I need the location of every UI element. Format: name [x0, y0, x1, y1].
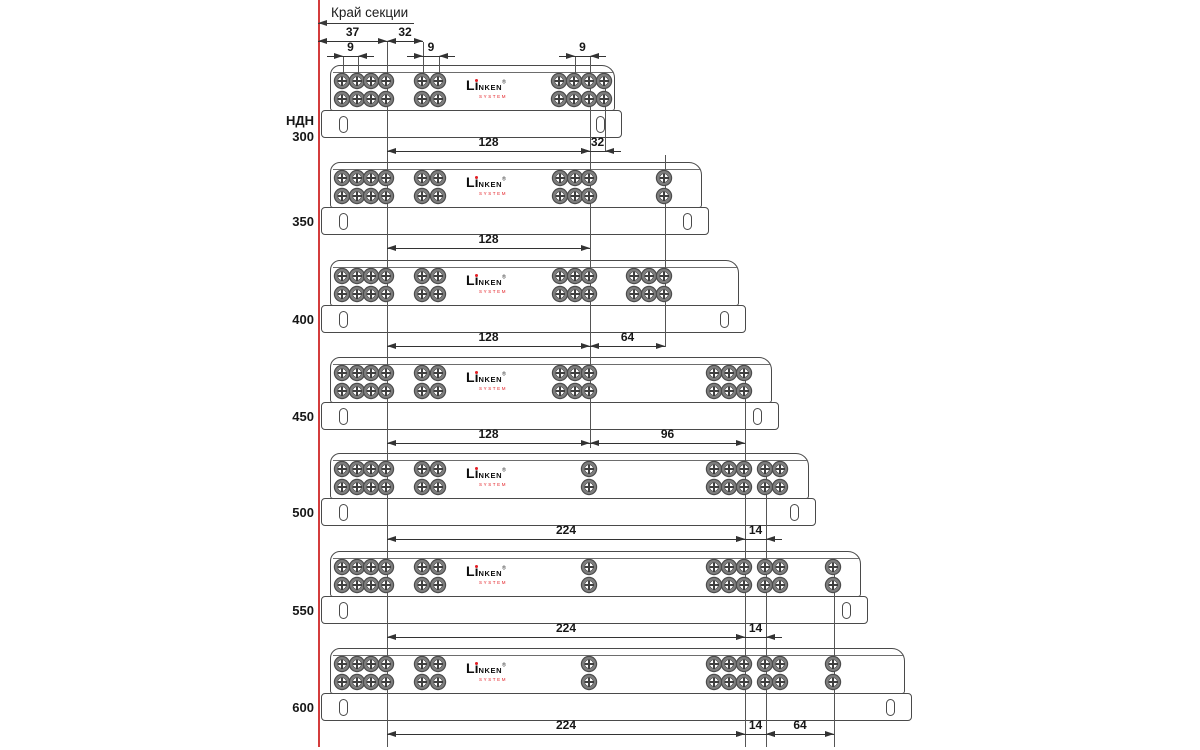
size-label: 400 — [240, 312, 314, 328]
linken-logo: LiNKEN®SYSTEM — [466, 273, 546, 295]
drawer-rail-bottom — [321, 693, 912, 721]
dim-arrow-icon — [387, 440, 396, 446]
screw-hole-icon — [722, 675, 736, 689]
screw-hole-icon — [379, 675, 393, 689]
drawer-rail-bottom — [321, 498, 816, 526]
screw-hole-icon — [737, 675, 751, 689]
dim-arrow-icon — [656, 343, 665, 349]
screw-hole-icon — [737, 578, 751, 592]
dim-arrow-icon — [387, 38, 396, 44]
screw-hole-icon — [350, 189, 364, 203]
screw-hole-icon — [415, 578, 429, 592]
screw-hole-icon — [431, 366, 445, 380]
dimension-line — [745, 539, 766, 540]
dimension-value: 128 — [478, 427, 498, 441]
dim-arrow-icon — [387, 245, 396, 251]
rail-fold-line — [333, 558, 859, 559]
screw-hole-icon — [582, 74, 596, 88]
dim-arrow-icon — [414, 53, 423, 59]
logo-red-dot-icon — [475, 371, 478, 374]
dimension-line — [387, 539, 745, 540]
screw-hole-icon — [364, 189, 378, 203]
slot-oval — [886, 699, 895, 716]
screw-hole-icon — [364, 657, 378, 671]
dimension-value: 14 — [749, 718, 762, 732]
screw-hole-icon — [582, 578, 596, 592]
screw-hole-icon — [657, 171, 671, 185]
screw-hole-icon — [582, 189, 596, 203]
logo-subtext: SYSTEM — [479, 192, 546, 197]
screw-hole-icon — [431, 384, 445, 398]
screw-hole-icon — [379, 171, 393, 185]
linken-logo: LiNKEN®SYSTEM — [466, 175, 546, 197]
screw-hole-icon — [415, 92, 429, 106]
logo-subtext: SYSTEM — [479, 678, 546, 683]
size-label: 450 — [240, 409, 314, 425]
screw-hole-icon — [582, 269, 596, 283]
screw-hole-icon — [335, 92, 349, 106]
logo-letters-nken: NKEN — [478, 278, 502, 287]
dimension-line — [387, 151, 590, 152]
dimension-line — [387, 346, 590, 347]
logo-registered-mark: ® — [502, 372, 506, 378]
screw-hole-icon — [553, 189, 567, 203]
screw-hole-icon — [553, 269, 567, 283]
dim-arrow-icon — [581, 343, 590, 349]
screw-hole-icon — [350, 560, 364, 574]
screw-hole-icon — [657, 269, 671, 283]
edge-leader-arrow-icon — [318, 20, 327, 26]
screw-hole-icon — [627, 269, 641, 283]
screw-hole-icon — [582, 560, 596, 574]
logo-letter-i: i — [475, 273, 479, 287]
screw-hole-icon — [567, 74, 581, 88]
screw-hole-icon — [350, 171, 364, 185]
screw-hole-icon — [552, 74, 566, 88]
screw-hole-icon — [431, 578, 445, 592]
slot-oval — [339, 116, 348, 133]
screw-hole-icon — [582, 675, 596, 689]
screw-hole-icon — [737, 657, 751, 671]
screw-hole-icon — [582, 462, 596, 476]
screw-hole-icon — [379, 92, 393, 106]
linken-logo: LiNKEN®SYSTEM — [466, 564, 546, 586]
screw-hole-icon — [335, 74, 349, 88]
screw-hole-icon — [568, 287, 582, 301]
logo-letters-nken: NKEN — [478, 83, 502, 92]
logo-red-dot-icon — [475, 79, 478, 82]
screw-hole-icon — [707, 657, 721, 671]
screw-hole-icon — [737, 366, 751, 380]
dimension-value: 14 — [749, 621, 762, 635]
rail-fold-line — [333, 267, 737, 268]
linken-logo: LiNKEN®SYSTEM — [466, 466, 546, 488]
rail-fold-line — [333, 72, 613, 73]
dim-arrow-icon — [766, 536, 775, 542]
screw-hole-icon — [335, 384, 349, 398]
screw-hole-icon — [431, 92, 445, 106]
slot-oval — [842, 602, 851, 619]
dimension-value: 14 — [749, 523, 762, 537]
screw-hole-icon — [553, 384, 567, 398]
screw-hole-icon — [597, 74, 611, 88]
dimension-value: 224 — [556, 718, 576, 732]
screw-hole-icon — [415, 560, 429, 574]
logo-letter-i: i — [475, 564, 479, 578]
screw-hole-icon — [431, 189, 445, 203]
screw-hole-icon — [350, 462, 364, 476]
rail-fold-line — [333, 655, 903, 656]
screw-hole-icon — [415, 657, 429, 671]
logo-letter-l: L — [466, 465, 475, 481]
dim-arrow-icon — [736, 536, 745, 542]
logo-subtext: SYSTEM — [479, 95, 546, 100]
screw-hole-icon — [335, 287, 349, 301]
slot-oval — [753, 408, 762, 425]
dimension-value: 37 — [346, 25, 359, 39]
linken-logo-wordmark: LiNKEN® — [466, 661, 546, 677]
screw-hole-icon — [758, 560, 772, 574]
rail-fold-line — [333, 364, 770, 365]
screw-hole-icon — [568, 269, 582, 283]
size-label: 500 — [240, 505, 314, 521]
screw-hole-icon — [737, 462, 751, 476]
screw-hole-icon — [379, 269, 393, 283]
logo-letters-nken: NKEN — [478, 375, 502, 384]
dimension-line — [745, 637, 766, 638]
screw-hole-icon — [707, 480, 721, 494]
linken-logo-wordmark: LiNKEN® — [466, 175, 546, 191]
dimension-line — [590, 443, 745, 444]
screw-hole-icon — [364, 366, 378, 380]
dimension-line — [766, 734, 834, 735]
dim-arrow-icon — [736, 440, 745, 446]
dimension-line — [590, 151, 605, 152]
logo-red-dot-icon — [475, 274, 478, 277]
logo-letters-nken: NKEN — [478, 569, 502, 578]
screw-hole-icon — [379, 189, 393, 203]
screw-hole-icon — [582, 92, 596, 106]
dim-arrow-icon — [766, 731, 775, 737]
screw-hole-icon — [431, 171, 445, 185]
screw-hole-icon — [722, 366, 736, 380]
screw-hole-icon — [364, 171, 378, 185]
screw-hole-icon — [707, 384, 721, 398]
screw-hole-icon — [773, 480, 787, 494]
drawer-rail-bottom — [321, 402, 779, 430]
screw-hole-icon — [758, 462, 772, 476]
screw-hole-icon — [335, 189, 349, 203]
slot-oval — [339, 311, 348, 328]
screw-hole-icon — [826, 578, 840, 592]
screw-hole-icon — [350, 657, 364, 671]
linken-logo-wordmark: LiNKEN® — [466, 273, 546, 289]
dimension-line — [590, 346, 665, 347]
screw-hole-icon — [335, 675, 349, 689]
screw-hole-icon — [737, 560, 751, 574]
screw-hole-icon — [567, 92, 581, 106]
screw-hole-icon — [379, 462, 393, 476]
screw-hole-icon — [722, 384, 736, 398]
logo-subtext: SYSTEM — [479, 483, 546, 488]
dimension-value: 128 — [478, 330, 498, 344]
logo-registered-mark: ® — [502, 177, 506, 183]
screw-hole-icon — [415, 171, 429, 185]
logo-letter-i: i — [475, 175, 479, 189]
screw-hole-icon — [582, 171, 596, 185]
screw-hole-icon — [707, 366, 721, 380]
screw-hole-icon — [582, 287, 596, 301]
screw-hole-icon — [582, 480, 596, 494]
screw-hole-icon — [568, 171, 582, 185]
screw-hole-icon — [826, 657, 840, 671]
screw-hole-icon — [722, 657, 736, 671]
dim-arrow-icon — [590, 440, 599, 446]
logo-registered-mark: ® — [502, 275, 506, 281]
screw-hole-icon — [707, 560, 721, 574]
screw-hole-icon — [364, 269, 378, 283]
slot-oval — [720, 311, 729, 328]
linken-logo-wordmark: LiNKEN® — [466, 370, 546, 386]
dim-arrow-icon — [736, 634, 745, 640]
screw-hole-icon — [350, 675, 364, 689]
screw-hole-icon — [431, 675, 445, 689]
screw-hole-icon — [379, 384, 393, 398]
screw-hole-icon — [627, 287, 641, 301]
screw-hole-icon — [415, 287, 429, 301]
dimension-value: 128 — [478, 232, 498, 246]
screw-hole-icon — [350, 366, 364, 380]
dimension-value: 64 — [793, 718, 806, 732]
screw-hole-icon — [364, 462, 378, 476]
linken-logo: LiNKEN®SYSTEM — [466, 370, 546, 392]
dim-arrow-icon — [387, 536, 396, 542]
screw-hole-icon — [379, 287, 393, 301]
screw-hole-icon — [431, 560, 445, 574]
screw-hole-icon — [553, 366, 567, 380]
size-label: 550 — [240, 603, 314, 619]
screw-hole-icon — [350, 269, 364, 283]
dimension-value: 9 — [579, 40, 586, 54]
screw-hole-icon — [415, 384, 429, 398]
screw-hole-icon — [773, 560, 787, 574]
logo-letter-i: i — [475, 78, 479, 92]
screw-hole-icon — [773, 462, 787, 476]
dim-arrow-icon — [581, 440, 590, 446]
dim-arrow-icon — [387, 148, 396, 154]
section-edge-guide-line — [318, 0, 320, 747]
dim-arrow-icon — [358, 53, 367, 59]
dim-arrow-icon — [378, 38, 387, 44]
screw-hole-icon — [722, 462, 736, 476]
dim-arrow-icon — [334, 53, 343, 59]
screw-hole-icon — [335, 462, 349, 476]
size-label-value: 300 — [240, 129, 314, 145]
logo-letter-l: L — [466, 272, 475, 288]
screw-hole-icon — [350, 384, 364, 398]
edge-section-label: Край секции — [331, 5, 408, 20]
screw-hole-icon — [415, 462, 429, 476]
screw-hole-icon — [657, 189, 671, 203]
dim-arrow-icon — [581, 148, 590, 154]
stage: Край секции LiNKEN®SYSTEMНДН300LiNKEN®SY… — [0, 0, 1200, 750]
screw-hole-icon — [758, 657, 772, 671]
logo-letter-l: L — [466, 563, 475, 579]
logo-registered-mark: ® — [502, 663, 506, 669]
screw-hole-icon — [415, 675, 429, 689]
extension-line — [605, 78, 606, 152]
dimension-line — [387, 248, 590, 249]
screw-hole-icon — [335, 578, 349, 592]
dimension-value: 96 — [661, 427, 674, 441]
size-label: 600 — [240, 700, 314, 716]
rail-fold-line — [333, 169, 700, 170]
screw-hole-icon — [758, 480, 772, 494]
rail-fold-line — [333, 460, 807, 461]
screw-hole-icon — [582, 384, 596, 398]
slot-oval — [596, 116, 605, 133]
logo-letters-nken: NKEN — [478, 180, 502, 189]
screw-hole-icon — [379, 74, 393, 88]
edge-section-leader — [318, 23, 414, 24]
screw-hole-icon — [415, 74, 429, 88]
screw-hole-icon — [379, 366, 393, 380]
dimension-value: 32 — [591, 135, 604, 149]
dim-arrow-icon — [590, 53, 599, 59]
dimension-value: 32 — [398, 25, 411, 39]
slot-oval — [339, 504, 348, 521]
screw-hole-icon — [364, 675, 378, 689]
logo-letter-i: i — [475, 661, 479, 675]
dim-arrow-icon — [605, 148, 614, 154]
logo-letter-l: L — [466, 174, 475, 190]
screw-hole-icon — [582, 366, 596, 380]
dimension-value: 224 — [556, 621, 576, 635]
screw-hole-icon — [379, 560, 393, 574]
logo-red-dot-icon — [475, 176, 478, 179]
logo-letter-i: i — [475, 466, 479, 480]
screw-hole-icon — [415, 480, 429, 494]
screw-hole-icon — [350, 480, 364, 494]
screw-hole-icon — [415, 189, 429, 203]
drawer-rail-bottom — [321, 207, 709, 235]
screw-hole-icon — [431, 462, 445, 476]
screw-hole-icon — [657, 287, 671, 301]
logo-letters-nken: NKEN — [478, 666, 502, 675]
screw-hole-icon — [737, 384, 751, 398]
screw-hole-icon — [568, 189, 582, 203]
dim-arrow-icon — [825, 731, 834, 737]
linken-logo-wordmark: LiNKEN® — [466, 78, 546, 94]
screw-hole-icon — [431, 480, 445, 494]
linken-logo: LiNKEN®SYSTEM — [466, 661, 546, 683]
screw-hole-icon — [335, 560, 349, 574]
dimension-value: 9 — [347, 40, 354, 54]
dim-arrow-icon — [387, 731, 396, 737]
dim-arrow-icon — [439, 53, 448, 59]
slot-oval — [339, 408, 348, 425]
screw-hole-icon — [335, 480, 349, 494]
screw-hole-icon — [553, 287, 567, 301]
screw-hole-icon — [826, 560, 840, 574]
logo-letter-l: L — [466, 660, 475, 676]
dim-arrow-icon — [581, 245, 590, 251]
screw-hole-icon — [379, 578, 393, 592]
screw-hole-icon — [722, 560, 736, 574]
slot-oval — [339, 602, 348, 619]
dimension-line — [575, 56, 590, 57]
screw-hole-icon — [415, 366, 429, 380]
logo-red-dot-icon — [475, 467, 478, 470]
dimension-value: 9 — [428, 40, 435, 54]
linken-logo-wordmark: LiNKEN® — [466, 564, 546, 580]
screw-hole-icon — [552, 92, 566, 106]
logo-letter-l: L — [466, 369, 475, 385]
slot-oval — [339, 699, 348, 716]
logo-registered-mark: ® — [502, 80, 506, 86]
screw-hole-icon — [722, 480, 736, 494]
logo-subtext: SYSTEM — [479, 290, 546, 295]
screw-hole-icon — [335, 366, 349, 380]
screw-hole-icon — [379, 657, 393, 671]
screw-hole-icon — [379, 480, 393, 494]
drawer-rail-bottom — [321, 110, 622, 138]
screw-hole-icon — [364, 287, 378, 301]
screw-hole-icon — [707, 462, 721, 476]
screw-hole-icon — [707, 675, 721, 689]
screw-hole-icon — [773, 657, 787, 671]
dim-arrow-icon — [566, 53, 575, 59]
construction-line — [745, 368, 746, 747]
screw-hole-icon — [773, 675, 787, 689]
screw-hole-icon — [758, 578, 772, 592]
dim-arrow-icon — [414, 38, 423, 44]
slot-oval — [790, 504, 799, 521]
logo-registered-mark: ® — [502, 566, 506, 572]
screw-hole-icon — [758, 675, 772, 689]
screw-hole-icon — [568, 384, 582, 398]
screw-hole-icon — [335, 269, 349, 283]
dimension-line — [387, 734, 745, 735]
dim-arrow-icon — [387, 634, 396, 640]
linken-logo-wordmark: LiNKEN® — [466, 466, 546, 482]
dimension-line — [343, 56, 358, 57]
screw-hole-icon — [642, 287, 656, 301]
screw-hole-icon — [350, 578, 364, 592]
size-label: НДН300 — [240, 113, 314, 145]
dimension-line — [387, 637, 745, 638]
slot-oval — [339, 213, 348, 230]
screw-hole-icon — [553, 171, 567, 185]
screw-hole-icon — [773, 578, 787, 592]
screw-hole-icon — [737, 480, 751, 494]
screw-hole-icon — [364, 578, 378, 592]
screw-hole-icon — [431, 657, 445, 671]
screw-hole-icon — [335, 171, 349, 185]
screw-hole-icon — [364, 92, 378, 106]
dim-arrow-icon — [766, 634, 775, 640]
dim-arrow-icon — [736, 731, 745, 737]
logo-letter-i: i — [475, 370, 479, 384]
size-label: 350 — [240, 214, 314, 230]
screw-hole-icon — [597, 92, 611, 106]
screw-hole-icon — [350, 287, 364, 301]
logo-letters-nken: NKEN — [478, 471, 502, 480]
size-label-prefix: НДН — [240, 113, 314, 129]
screw-hole-icon — [350, 92, 364, 106]
linken-logo: LiNKEN®SYSTEM — [466, 78, 546, 100]
screw-hole-icon — [364, 74, 378, 88]
